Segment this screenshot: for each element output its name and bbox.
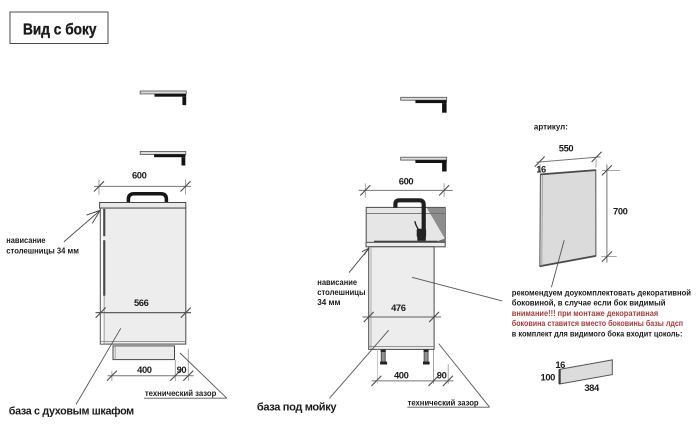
svg-text:рекомендуем доукомплектовать д: рекомендуем доукомплектовать декоративно… [512,288,691,297]
svg-text:550: 550 [559,142,574,153]
svg-text:технический зазор: технический зазор [145,389,217,398]
svg-text:в комплект для видимого бока в: в комплект для видимого бока входит цоко… [512,330,683,339]
svg-text:90: 90 [437,370,447,381]
svg-text:400: 400 [137,364,152,375]
svg-text:нависание: нависание [317,278,357,287]
svg-text:34 мм: 34 мм [317,298,340,307]
svg-text:технический зазор: технический зазор [408,398,479,407]
svg-text:база с духовым шкафом: база с духовым шкафом [9,405,134,417]
svg-text:384: 384 [584,382,600,393]
svg-text:90: 90 [177,364,187,375]
svg-text:боковиной, в случае если бок в: боковиной, в случае если бок видимый [512,299,666,308]
svg-text:476: 476 [391,302,406,313]
svg-text:Вид с боку: Вид с боку [23,22,97,39]
svg-text:боковина ставится вместо боков: боковина ставится вместо боковины базы л… [512,319,683,328]
svg-text:внимание!!! при монтаже декора: внимание!!! при монтаже декоративная [512,309,659,318]
svg-text:16: 16 [536,163,546,174]
svg-text:566: 566 [134,297,149,308]
svg-text:нависание: нависание [6,236,46,245]
svg-text:база под мойку: база под мойку [257,401,338,413]
svg-text:700: 700 [613,205,628,216]
svg-text:столешницы 34 мм: столешницы 34 мм [6,246,79,255]
svg-text:600: 600 [132,170,147,181]
svg-text:16: 16 [555,359,565,370]
svg-text:столешницы: столешницы [317,288,365,297]
svg-text:400: 400 [394,370,409,381]
svg-text:100: 100 [541,372,556,383]
svg-text:артикул:: артикул: [534,122,568,131]
svg-text:600: 600 [399,175,414,186]
